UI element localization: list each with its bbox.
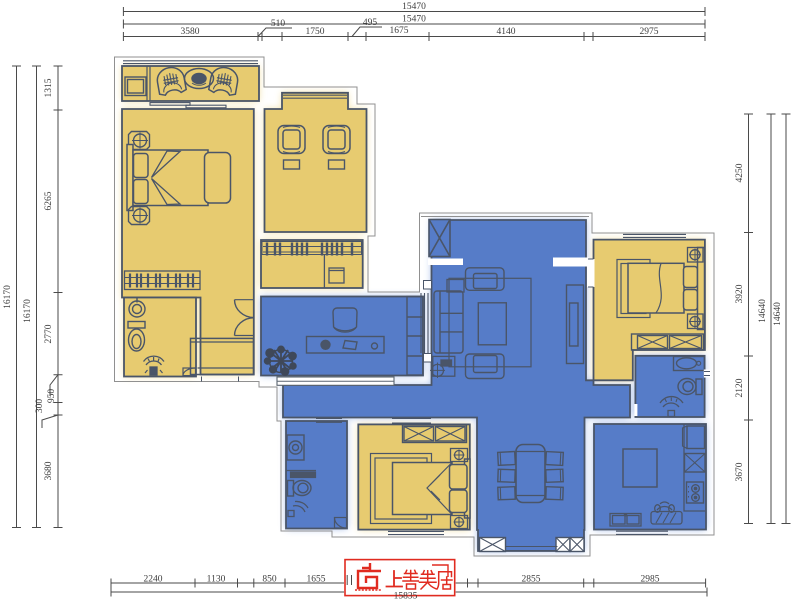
svg-text:850: 850 [262, 575, 277, 585]
svg-text:15470: 15470 [402, 15, 426, 25]
svg-text:300: 300 [35, 399, 45, 414]
svg-text:2120: 2120 [735, 378, 745, 397]
svg-text:14640: 14640 [773, 302, 783, 326]
svg-text:1750: 1750 [306, 27, 325, 37]
svg-text:3680: 3680 [44, 461, 54, 480]
svg-text:2855: 2855 [522, 575, 541, 585]
svg-text:6265: 6265 [44, 191, 54, 210]
svg-text:16170: 16170 [3, 285, 13, 309]
svg-text:495: 495 [363, 18, 378, 28]
svg-text:16170: 16170 [23, 299, 33, 323]
svg-text:2985: 2985 [641, 575, 660, 585]
svg-text:4250: 4250 [735, 163, 745, 182]
svg-text:1675: 1675 [390, 26, 409, 36]
svg-text:1130: 1130 [207, 575, 226, 585]
svg-text:15470: 15470 [402, 2, 426, 12]
svg-text:14640: 14640 [758, 299, 768, 323]
svg-text:950: 950 [47, 389, 57, 404]
svg-text:1655: 1655 [307, 575, 326, 585]
svg-text:1315: 1315 [44, 78, 54, 97]
svg-text:2240: 2240 [144, 575, 163, 585]
svg-text:510: 510 [271, 19, 286, 29]
svg-text:15835: 15835 [394, 592, 418, 600]
svg-text:3580: 3580 [181, 27, 200, 37]
svg-text:4140: 4140 [497, 27, 516, 37]
svg-text:3670: 3670 [735, 462, 745, 481]
svg-text:2770: 2770 [44, 324, 54, 343]
svg-text:2975: 2975 [640, 27, 659, 37]
svg-text:3920: 3920 [735, 284, 745, 303]
